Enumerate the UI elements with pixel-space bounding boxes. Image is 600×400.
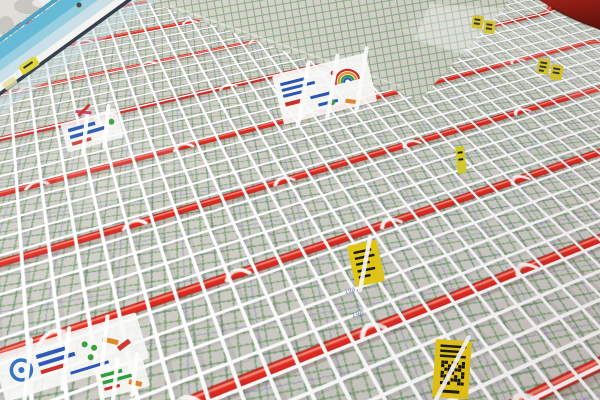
floor-scene [0, 0, 600, 400]
floor-plane [0, 0, 600, 400]
photo-underfloor-heating-installation: 190190 [0, 0, 600, 400]
steel-wire-mesh-layer [0, 0, 600, 400]
